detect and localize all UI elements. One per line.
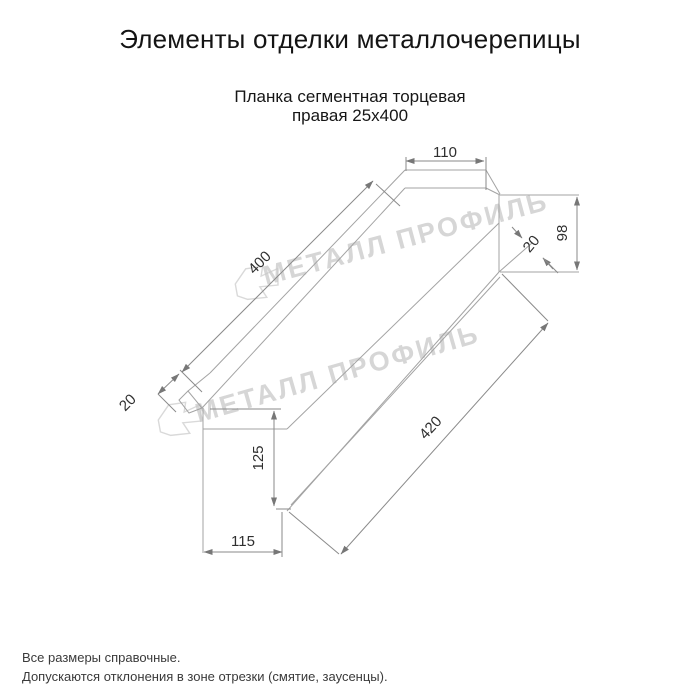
dim-label-115: 115 — [231, 533, 255, 550]
dim-label-110: 110 — [433, 144, 457, 161]
footer-note-2: Допускаются отклонения в зоне отрезки (с… — [22, 667, 388, 686]
watermark-text-2: МЕТАЛЛ ПРОФИЛЬ — [192, 318, 483, 428]
footer-note-1: Все размеры справочные. — [22, 648, 388, 667]
dim-label-20-right: 20 — [520, 232, 544, 256]
technical-drawing: МЕТАЛЛ ПРОФИЛЬ МЕТАЛЛ ПРОФИЛЬ — [0, 0, 700, 700]
dim-label-98: 98 — [554, 225, 571, 242]
dim-label-125: 125 — [250, 445, 267, 470]
dim-label-420: 420 — [416, 413, 446, 443]
footer-notes: Все размеры справочные. Допускаются откл… — [22, 648, 388, 686]
dim-label-20-left: 20 — [116, 391, 140, 415]
